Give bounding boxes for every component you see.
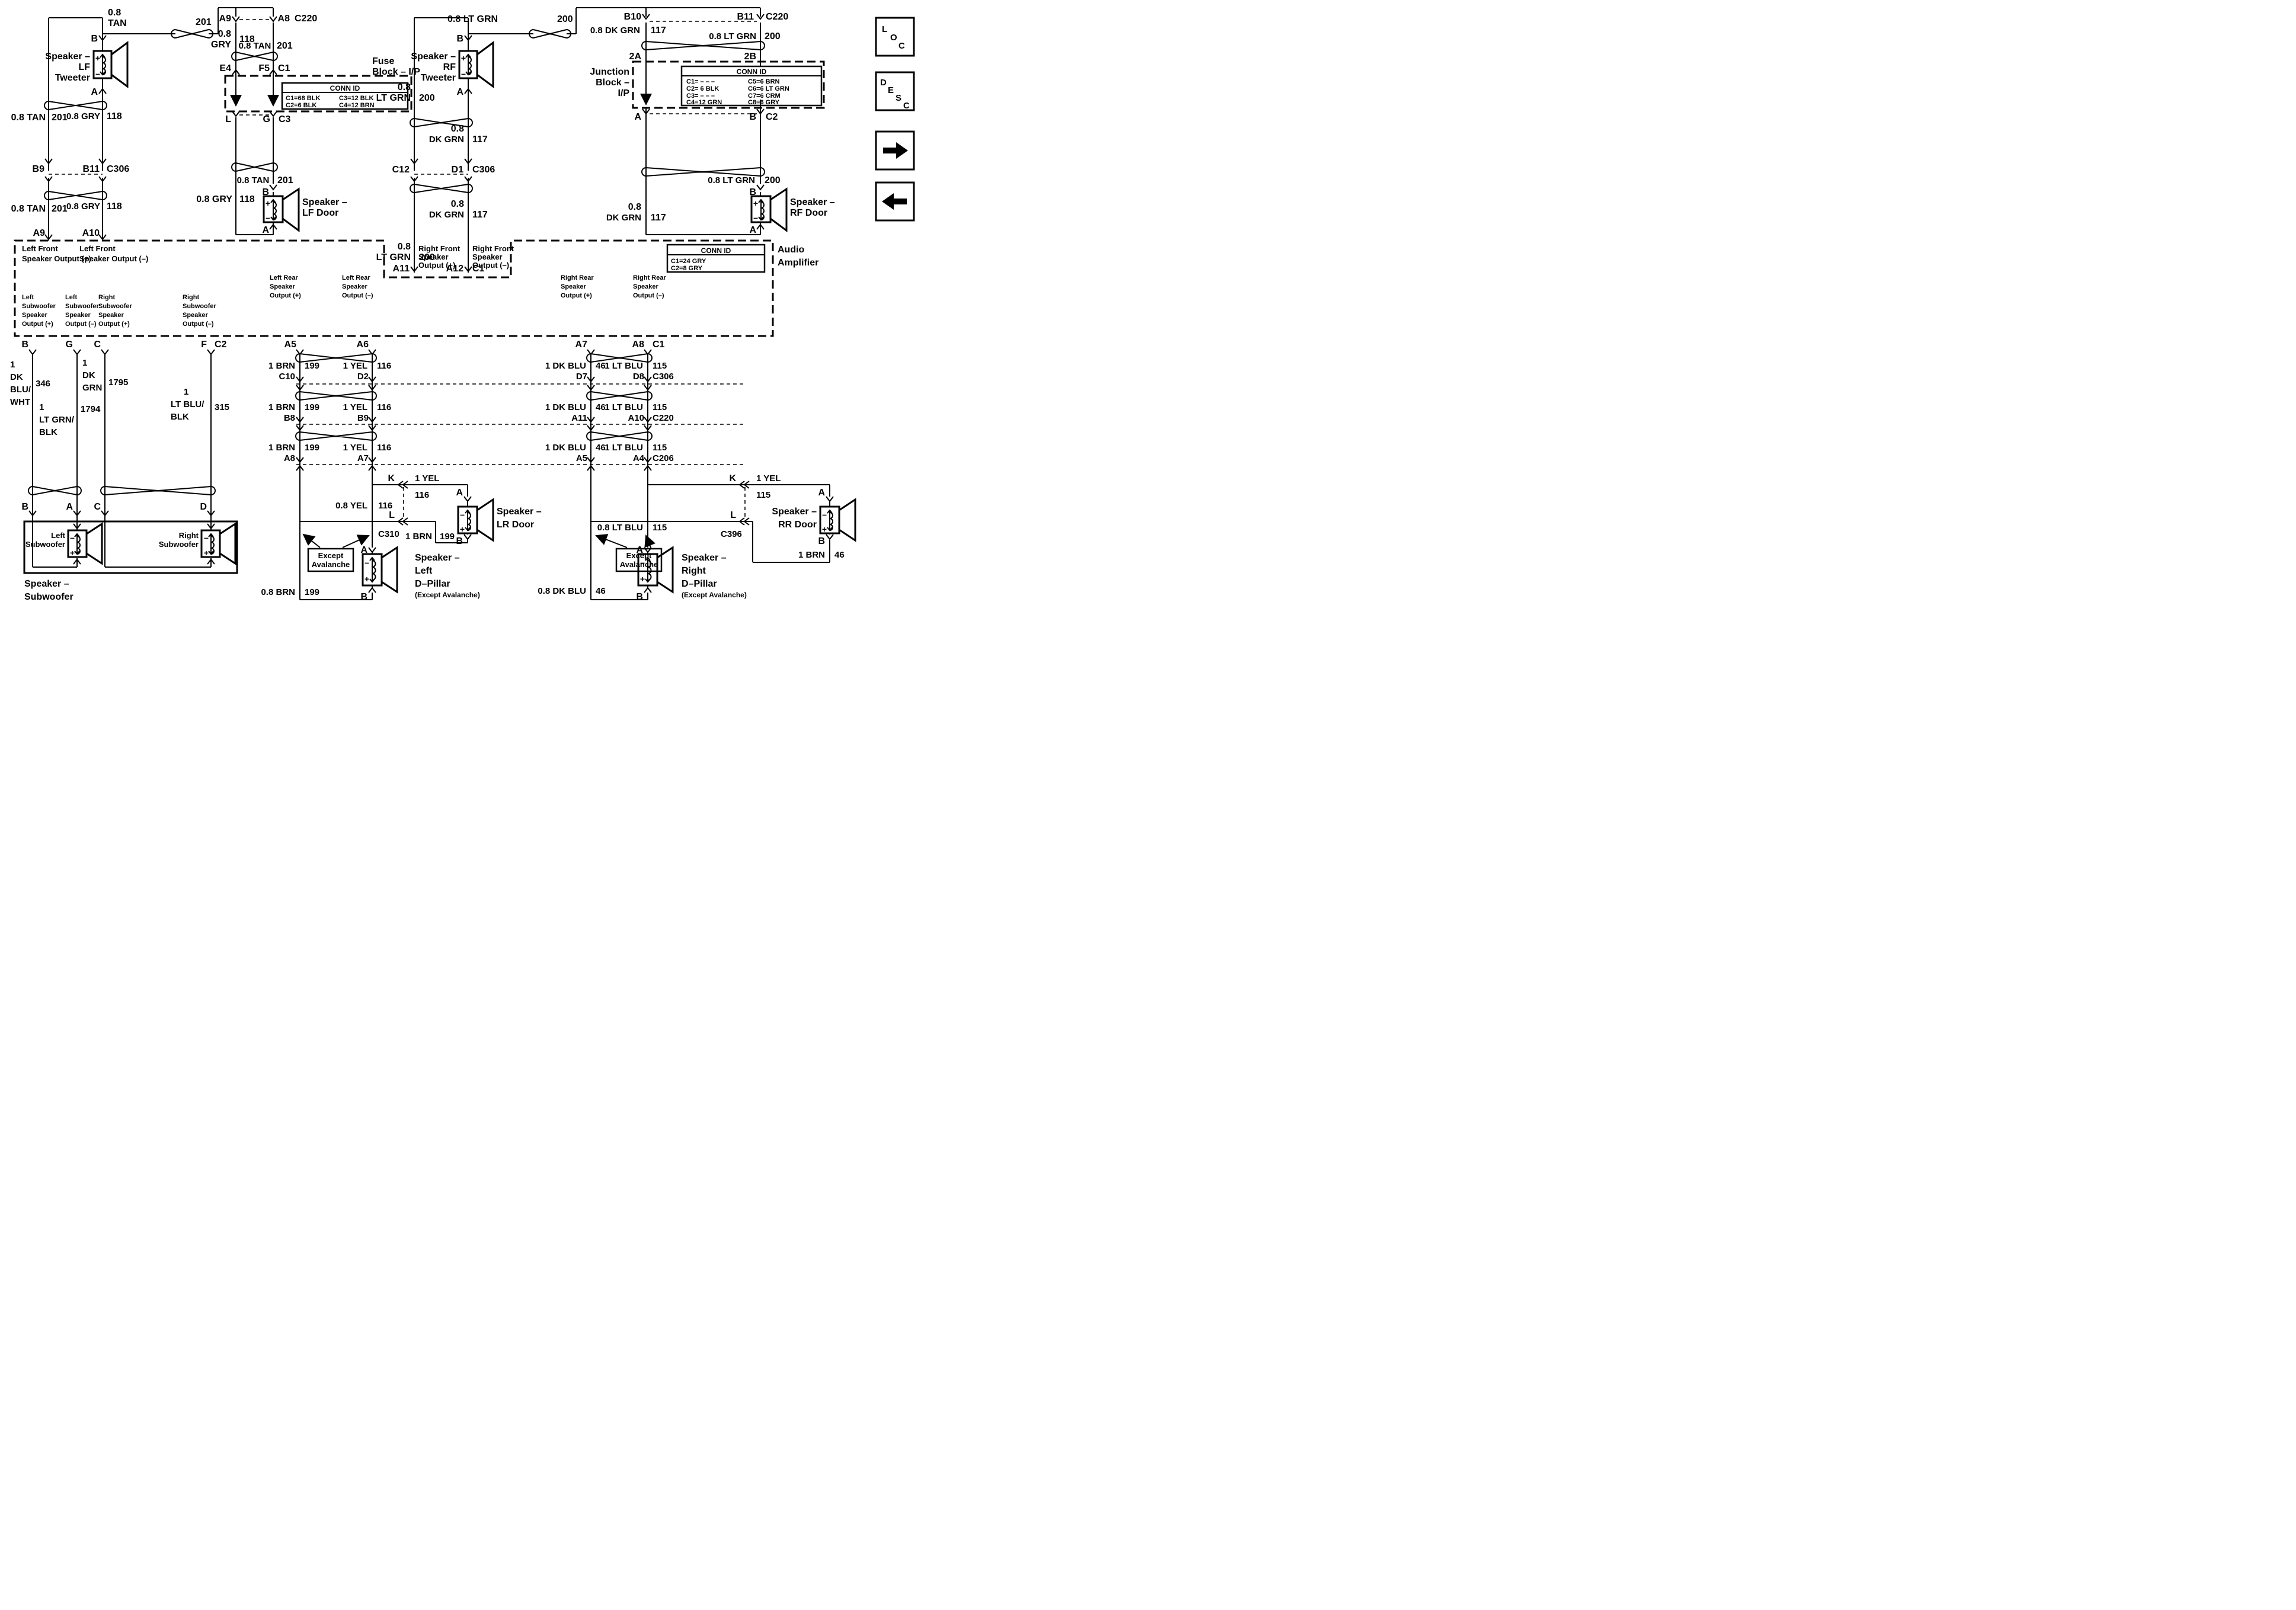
circuit-label: 115 bbox=[756, 490, 770, 500]
speaker-label: Speaker – bbox=[790, 197, 835, 207]
wire-label: 1 YEL bbox=[756, 473, 781, 484]
speaker-label: Subwoofer bbox=[25, 540, 65, 549]
connector-chevrons bbox=[642, 14, 764, 229]
output-label: Output (+) bbox=[561, 292, 592, 299]
pin-label: C bbox=[94, 340, 101, 350]
output-label: Subwoofer bbox=[22, 303, 56, 310]
wire-label: 1 YEL bbox=[343, 443, 367, 453]
output-label: Speaker bbox=[65, 312, 91, 319]
pin-label: A bbox=[66, 502, 73, 512]
pin-label: 2B bbox=[744, 52, 756, 62]
wire-label: 0.8 YEL bbox=[335, 501, 367, 511]
wire-label: 1 bbox=[10, 360, 15, 370]
wiring-diagram-page: CONN ID C1=68 BLK C2=6 BLK C3=12 BLK C4=… bbox=[0, 0, 919, 646]
loc-letter: C bbox=[898, 41, 905, 51]
output-label: Subwoofer bbox=[98, 303, 133, 310]
output-label: Right Front bbox=[418, 244, 461, 253]
pin-label: A bbox=[91, 87, 98, 97]
wire-label: 0.8 bbox=[451, 199, 464, 209]
audio-amplifier: CONN ID C1=24 GRY C2=8 GRY Audio Amplifi… bbox=[15, 241, 818, 336]
amplifier-label: Audio bbox=[778, 245, 805, 255]
conn-id-box-junction: CONN ID C1= – – – C2= 6 BLK C3= – – – C4… bbox=[682, 66, 821, 106]
speaker-label: Speaker – bbox=[302, 197, 347, 207]
left-rear-circuit: A5 A6 1 BRN 199 1 YEL 116 C10 D2 1 BRN 1… bbox=[261, 340, 541, 602]
speaker-label: Speaker – bbox=[411, 52, 456, 62]
connector-label: C396 bbox=[721, 529, 742, 539]
pin-label: C bbox=[94, 502, 101, 512]
output-label: Output (–) bbox=[472, 261, 509, 270]
circuit-label: 118 bbox=[239, 194, 255, 204]
desc-letter: E bbox=[888, 85, 894, 95]
loc-letter: L bbox=[882, 24, 887, 34]
minus-terminal: – bbox=[822, 510, 827, 519]
connector-label: C306 bbox=[653, 372, 674, 382]
circuit-label: 46 bbox=[596, 361, 606, 371]
speaker-label: Tweeter bbox=[55, 73, 90, 83]
wire-label: 0.8 TAN bbox=[239, 41, 271, 51]
arrow-right-icon bbox=[883, 142, 908, 159]
wire-label: 0.8 GRY bbox=[66, 111, 100, 121]
conn-row: C1=68 BLK bbox=[286, 95, 320, 102]
pin-label: A bbox=[262, 225, 269, 235]
output-label: Speaker bbox=[183, 312, 209, 319]
wire-label: 0.8 GRY bbox=[196, 194, 232, 204]
speaker-label: Left bbox=[51, 531, 66, 540]
speaker-horn bbox=[477, 43, 493, 87]
wire-label: LT GRN/ bbox=[39, 415, 75, 425]
wire-label: BLK bbox=[171, 412, 189, 422]
junction-block-label: Junction bbox=[590, 67, 629, 77]
speaker-coil bbox=[759, 200, 764, 220]
minus-terminal: – bbox=[266, 213, 270, 222]
wire-label: 1 DK BLU bbox=[545, 402, 586, 412]
wire-label: 0.8 bbox=[398, 82, 411, 92]
fuse-block-label: Fuse bbox=[372, 56, 394, 66]
output-label: Output (+) bbox=[98, 321, 130, 328]
pin-label: C12 bbox=[392, 165, 410, 175]
speaker-label: LF Door bbox=[302, 208, 338, 218]
speaker-coil bbox=[370, 558, 376, 582]
junction-block-circuit: CONN ID C1= – – – C2= 6 BLK C3= – – – C4… bbox=[590, 8, 834, 235]
wire-label: 1 bbox=[184, 387, 188, 397]
speaker-label: RF Door bbox=[790, 208, 827, 218]
circuit-label: 116 bbox=[377, 361, 391, 371]
wire-label: 1 BRN bbox=[405, 532, 432, 542]
conn-row: C2=8 GRY bbox=[671, 265, 703, 272]
callout-arrow bbox=[303, 534, 320, 548]
circuit-label: 201 bbox=[277, 41, 293, 51]
amplifier-label: Amplifier bbox=[778, 258, 818, 268]
pin-label: A7 bbox=[357, 453, 369, 463]
output-label: Left bbox=[22, 294, 34, 301]
pin-label: A5 bbox=[284, 340, 297, 350]
pin-label: L bbox=[730, 510, 736, 520]
output-label: Speaker bbox=[22, 312, 48, 319]
plus-terminal: + bbox=[95, 53, 100, 63]
pin-label: A bbox=[456, 488, 463, 498]
speaker-coil bbox=[75, 534, 80, 554]
output-label: Subwoofer bbox=[183, 303, 217, 310]
output-label: Output (–) bbox=[65, 321, 97, 328]
pin-label: G bbox=[66, 340, 73, 350]
speaker-horn bbox=[382, 548, 397, 592]
pin-label: D1 bbox=[452, 165, 464, 175]
minus-terminal: – bbox=[461, 69, 466, 78]
conn-id-box-amplifier: CONN ID C1=24 GRY C2=8 GRY bbox=[667, 245, 765, 272]
conn-row: C2= 6 BLK bbox=[686, 85, 719, 92]
wire-label: TAN bbox=[108, 18, 127, 28]
wire-label: 1 BRN bbox=[798, 550, 825, 560]
connector-label: C220 bbox=[653, 413, 674, 423]
conn-row: C6=6 LT GRN bbox=[748, 85, 789, 92]
circuit-label: 116 bbox=[415, 490, 429, 500]
speaker-label: Speaker – bbox=[682, 553, 727, 563]
speaker-coil bbox=[209, 534, 214, 554]
wire bbox=[414, 8, 760, 273]
minus-terminal: – bbox=[204, 533, 209, 542]
circuit-label: 118 bbox=[107, 111, 122, 121]
wiring-diagram: CONN ID C1=68 BLK C2=6 BLK C3=12 BLK C4=… bbox=[0, 0, 919, 646]
wire-label: 0.8 bbox=[398, 242, 411, 252]
speaker-left-subwoofer: – + bbox=[68, 524, 102, 564]
pin-label: A10 bbox=[628, 413, 644, 423]
wire-label: 0.8 GRY bbox=[66, 201, 100, 212]
circuit-label: 199 bbox=[305, 402, 319, 412]
pin-label: A5 bbox=[576, 453, 587, 463]
circuit-label: 199 bbox=[440, 532, 455, 542]
pin-label: A4 bbox=[633, 453, 645, 463]
plus-terminal: + bbox=[461, 53, 466, 63]
except-avalanche-label: Except bbox=[318, 551, 344, 560]
right-rear-circuit: A7 A8 C1 1 DK BLU 46 1 LT BLU 115 D7 D8 … bbox=[538, 340, 855, 602]
desc-letter: C bbox=[903, 101, 910, 111]
conn-row: C5=6 BRN bbox=[748, 78, 780, 85]
circuit-label: 117 bbox=[472, 135, 488, 145]
circuit-label: 201 bbox=[52, 113, 68, 123]
circuit-label: 116 bbox=[378, 501, 392, 511]
subwoofer-circuit: B G C F C2 1 DK BLU/ WHT 346 1 DK GRN 17… bbox=[10, 340, 237, 602]
speaker-lf-door: + – bbox=[264, 189, 299, 231]
speaker-label: Speaker – bbox=[415, 553, 460, 563]
wire-label: GRY bbox=[211, 40, 231, 50]
speaker-label: (Except Avalanche) bbox=[682, 591, 747, 599]
connector-label: C1 bbox=[653, 340, 665, 350]
pin-label: A bbox=[634, 112, 641, 122]
wire-label: LT GRN bbox=[376, 93, 411, 103]
connector-label: C2 bbox=[215, 340, 227, 350]
pin-label: B bbox=[456, 34, 463, 44]
connector-label: C306 bbox=[472, 165, 495, 175]
speaker-label: LF bbox=[78, 62, 90, 72]
wire-label: LT BLU/ bbox=[171, 399, 204, 409]
speaker-label: Speaker – bbox=[45, 52, 90, 62]
speaker-label: Speaker – bbox=[772, 507, 817, 517]
circuit-label: 115 bbox=[653, 523, 667, 533]
circuit-label: 117 bbox=[651, 213, 666, 223]
speaker-left-d-pillar: – + bbox=[363, 548, 397, 592]
output-label: Output (–) bbox=[633, 292, 664, 299]
pin-label: A bbox=[456, 87, 463, 97]
connector-label: C220 bbox=[766, 12, 788, 22]
desc-letter: D bbox=[880, 78, 887, 88]
connector-label: C306 bbox=[107, 164, 129, 174]
pin-label: A8 bbox=[632, 340, 645, 350]
speaker-label: Subwoofer bbox=[159, 540, 199, 549]
pin-label: L bbox=[225, 114, 231, 124]
minus-terminal: – bbox=[364, 558, 369, 567]
wire-label: BLK bbox=[39, 427, 57, 437]
wire-label: 0.8 LT GRN bbox=[709, 31, 756, 41]
circuit-label: 315 bbox=[215, 402, 229, 412]
wire-label: 1 LT BLU bbox=[605, 402, 643, 412]
speaker-coil bbox=[827, 510, 833, 530]
speaker-coil bbox=[466, 55, 471, 75]
circuit-label: 346 bbox=[36, 379, 50, 389]
conn-row: C8=6 GRY bbox=[748, 99, 780, 106]
wire-label: LT GRN bbox=[376, 252, 411, 263]
wire-label: 1 LT BLU bbox=[605, 443, 643, 453]
output-label: Subwoofer bbox=[65, 303, 100, 310]
output-label: Speaker bbox=[418, 252, 449, 261]
pin-label: A bbox=[749, 225, 756, 235]
pin-label: B8 bbox=[284, 413, 295, 423]
wire-label: 0.8 DK GRN bbox=[590, 25, 640, 36]
pin-label: B11 bbox=[737, 12, 754, 22]
connector-label: C206 bbox=[653, 453, 674, 463]
wire-label: 0.8 TAN bbox=[237, 175, 270, 185]
junction-block-outline bbox=[633, 62, 824, 108]
except-avalanche-callout: Except Avalanche bbox=[303, 534, 369, 571]
except-avalanche-label: Avalanche bbox=[620, 560, 658, 569]
speaker-label: Speaker – bbox=[497, 507, 542, 517]
speaker-horn bbox=[87, 524, 102, 564]
junction-block-label: Block – bbox=[596, 78, 629, 88]
conn-row: C4=12 GRN bbox=[686, 99, 722, 106]
conn-id-title: CONN ID bbox=[737, 68, 767, 76]
minus-terminal: – bbox=[753, 213, 758, 222]
wire-label: 0.8 TAN bbox=[11, 204, 46, 214]
circuit-label: 201 bbox=[277, 175, 293, 185]
output-label: Left Front bbox=[79, 244, 116, 253]
pin-label: A8 bbox=[284, 453, 295, 463]
output-label: Speaker bbox=[98, 312, 124, 319]
speaker-horn bbox=[220, 524, 235, 564]
wire-label: 0.8 bbox=[451, 124, 464, 134]
pin-label: B bbox=[456, 536, 463, 546]
speaker-coil bbox=[271, 200, 276, 220]
pin-label: A10 bbox=[82, 228, 100, 238]
speaker-label: LR Door bbox=[497, 520, 534, 530]
wire-label: DK GRN bbox=[429, 135, 464, 145]
except-avalanche-label: Avalanche bbox=[312, 560, 350, 569]
output-label: Left bbox=[65, 294, 78, 301]
output-label: Output (+) bbox=[22, 321, 53, 328]
conn-id-title: CONN ID bbox=[701, 247, 731, 255]
pin-label: B bbox=[21, 502, 28, 512]
circuit-label: 1794 bbox=[81, 404, 101, 414]
output-label: Speaker bbox=[342, 283, 368, 290]
pin-label: D2 bbox=[357, 372, 369, 382]
output-label: Speaker bbox=[561, 283, 587, 290]
output-label: Output (+) bbox=[270, 292, 301, 299]
wire-label: DK bbox=[10, 372, 23, 382]
pin-label: G bbox=[263, 114, 270, 124]
circuit-label: 200 bbox=[557, 14, 573, 24]
circuit-label: 199 bbox=[305, 587, 319, 597]
wire-label: WHT bbox=[10, 397, 30, 407]
speaker-label: Right bbox=[682, 566, 706, 576]
wire-label: 0.8 DK BLU bbox=[538, 586, 586, 596]
pin-label: E4 bbox=[219, 63, 231, 73]
wire bbox=[646, 8, 760, 235]
circuit-label: 118 bbox=[107, 201, 122, 212]
wire-label: 0.8 BRN bbox=[261, 587, 295, 597]
circuit-label: 115 bbox=[653, 443, 667, 453]
circuit-label: 46 bbox=[596, 586, 606, 596]
pin-label: A7 bbox=[575, 340, 588, 350]
circuit-label: 115 bbox=[653, 402, 667, 412]
pin-label: A6 bbox=[357, 340, 369, 350]
speaker-label: Subwoofer bbox=[24, 592, 73, 602]
connector-label: C2 bbox=[766, 112, 778, 122]
wire-label: 1 BRN bbox=[268, 443, 295, 453]
plus-terminal: + bbox=[204, 548, 209, 558]
speaker-label: Right bbox=[179, 531, 199, 540]
minus-terminal: – bbox=[95, 69, 100, 78]
conn-row: C1=24 GRY bbox=[671, 258, 706, 265]
speaker-horn bbox=[111, 43, 127, 87]
output-label: Right bbox=[98, 294, 115, 301]
plus-terminal: + bbox=[753, 199, 758, 208]
pin-label: 2A bbox=[629, 52, 642, 62]
speaker-horn bbox=[770, 189, 786, 231]
conn-row: C1= – – – bbox=[686, 78, 715, 85]
pin-label: B bbox=[21, 340, 28, 350]
circuit-label: 46 bbox=[834, 550, 845, 560]
circuit-label: 115 bbox=[653, 361, 667, 371]
junction-block-label: I/P bbox=[618, 88, 629, 98]
connector-label: C3 bbox=[279, 114, 291, 124]
pin-label: B bbox=[91, 34, 98, 44]
wire-label: 1 DK BLU bbox=[545, 443, 586, 453]
pin-label: C10 bbox=[279, 372, 295, 382]
pin-label: A11 bbox=[571, 413, 587, 423]
pin-label: B11 bbox=[83, 164, 100, 174]
circuit-label: 46 bbox=[596, 443, 606, 453]
conn-id-title: CONN ID bbox=[330, 84, 360, 92]
minus-terminal: – bbox=[460, 510, 465, 519]
fuse-block-label: Block – I/P bbox=[372, 67, 420, 77]
speaker-right-subwoofer: – + bbox=[202, 524, 235, 564]
pin-label: B bbox=[636, 592, 643, 602]
connector-label: C1 bbox=[278, 63, 290, 73]
conn-row: C4=12 BRN bbox=[339, 102, 375, 109]
wire-label: 1 BRN bbox=[268, 361, 295, 371]
wire-label: 1 DK BLU bbox=[545, 361, 586, 371]
wire-label: 0.8 LT BLU bbox=[597, 523, 643, 533]
wire-label: 0.8 bbox=[628, 202, 641, 212]
speaker-rf-tweeter: + – bbox=[459, 43, 493, 87]
desc-letter: S bbox=[896, 93, 901, 103]
wire-label: DK bbox=[82, 370, 95, 380]
wire-label: 1 YEL bbox=[343, 402, 367, 412]
pin-label: K bbox=[388, 473, 395, 484]
wire-label: 0.8 LT GRN bbox=[447, 14, 498, 24]
circuit-label: 1795 bbox=[108, 377, 128, 388]
circuit-label: 46 bbox=[596, 402, 606, 412]
wire-label: 1 YEL bbox=[343, 361, 367, 371]
speaker-rr-door: – + bbox=[820, 500, 855, 540]
pin-label: F bbox=[201, 340, 207, 350]
pin-label: B10 bbox=[624, 12, 641, 22]
circuit-label: 200 bbox=[765, 175, 781, 185]
output-label: Speaker Output (–) bbox=[79, 254, 148, 263]
loc-letter: O bbox=[890, 33, 897, 43]
pin-label: B9 bbox=[33, 164, 45, 174]
wire-label: BLU/ bbox=[10, 385, 31, 395]
circuit-label: 201 bbox=[52, 204, 68, 214]
speaker-label: D–Pillar bbox=[682, 579, 717, 589]
pin-label: A9 bbox=[33, 228, 46, 238]
pin-label: D8 bbox=[633, 372, 644, 382]
output-label: Right Front bbox=[472, 244, 514, 253]
pin-label: A8 bbox=[278, 14, 290, 24]
pin-label: A bbox=[818, 488, 825, 498]
pin-label: F5 bbox=[258, 63, 270, 73]
wire-label: 1 BRN bbox=[268, 402, 295, 412]
plus-terminal: + bbox=[70, 548, 75, 558]
output-label: Output (–) bbox=[342, 292, 373, 299]
speaker-label: RR Door bbox=[778, 520, 817, 530]
output-label: Left Rear bbox=[342, 274, 370, 281]
wire-label: 0.8 bbox=[218, 29, 231, 39]
connector-label: C310 bbox=[378, 529, 399, 539]
conn-row: C3=12 BLK bbox=[339, 95, 373, 102]
speaker-rf-door: + – bbox=[752, 189, 786, 231]
pin-label: B9 bbox=[357, 413, 369, 423]
wire-label: 0.8 TAN bbox=[11, 113, 46, 123]
speaker-lf-tweeter: + – bbox=[94, 43, 127, 87]
wire-label: 1 bbox=[82, 358, 87, 368]
minus-terminal: – bbox=[70, 533, 75, 542]
plus-terminal: + bbox=[822, 524, 827, 534]
wire-label: 1 bbox=[39, 402, 44, 412]
speaker-lr-door: – + bbox=[458, 500, 493, 540]
pin-label: B bbox=[749, 112, 756, 122]
circuit-label: 116 bbox=[377, 443, 391, 453]
wire-label: 0.8 LT GRN bbox=[708, 175, 755, 185]
rf-speaker-circuit: + – Speaker – RF Tweeter B A 0.8 LT GRN … bbox=[376, 8, 760, 274]
speaker-label: D–Pillar bbox=[415, 579, 450, 589]
wire-label: GRN bbox=[82, 383, 102, 393]
pin-label: K bbox=[729, 473, 736, 484]
wire-label: 1 YEL bbox=[415, 473, 439, 484]
speaker-coil bbox=[100, 55, 105, 75]
speaker-label: Tweeter bbox=[421, 73, 456, 83]
circuit-label: 200 bbox=[765, 31, 781, 41]
output-label: Right Rear bbox=[633, 274, 666, 281]
except-avalanche-label: Except bbox=[626, 551, 652, 560]
plus-terminal: + bbox=[266, 199, 270, 208]
speaker-label: Speaker – bbox=[24, 579, 69, 589]
plus-terminal: + bbox=[460, 524, 465, 534]
circuit-label: 199 bbox=[305, 361, 319, 371]
output-label: Speaker bbox=[472, 252, 503, 261]
pin-label: A9 bbox=[219, 14, 232, 24]
connector-label: C220 bbox=[295, 14, 317, 24]
output-label: Right bbox=[183, 294, 199, 301]
circuit-label: 116 bbox=[377, 402, 391, 412]
